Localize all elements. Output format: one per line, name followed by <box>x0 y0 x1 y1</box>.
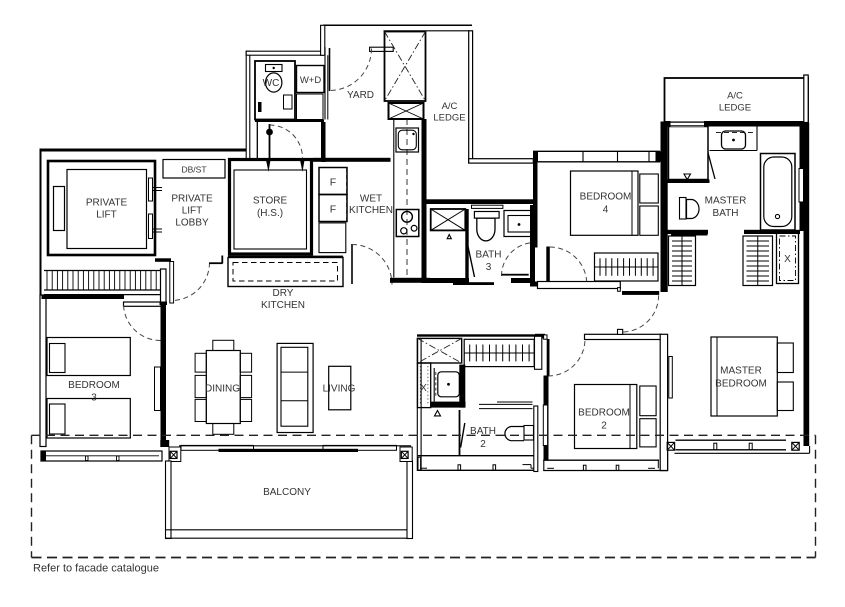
svg-text:PRIVATE: PRIVATE <box>86 198 128 209</box>
svg-text:LIFT: LIFT <box>96 210 117 221</box>
svg-text:LIVING: LIVING <box>323 384 356 395</box>
svg-text:F: F <box>330 177 336 189</box>
svg-text:KITCHEN: KITCHEN <box>349 205 393 216</box>
svg-text:DRY: DRY <box>273 288 294 299</box>
svg-text:W+D: W+D <box>300 75 322 86</box>
svg-text:3: 3 <box>91 393 97 404</box>
svg-text:4: 4 <box>603 205 609 216</box>
svg-text:MASTER: MASTER <box>720 366 762 377</box>
svg-text:BEDROOM: BEDROOM <box>578 408 630 419</box>
svg-text:X: X <box>784 254 791 265</box>
svg-text:BATH: BATH <box>476 250 502 261</box>
svg-text:LEDGE: LEDGE <box>719 103 751 114</box>
svg-text:WC: WC <box>263 78 280 89</box>
svg-text:LIFT: LIFT <box>182 206 203 217</box>
svg-text:BEDROOM: BEDROOM <box>580 192 632 203</box>
svg-text:LEDGE: LEDGE <box>433 113 465 124</box>
svg-text:2: 2 <box>601 421 607 432</box>
svg-text:KITCHEN: KITCHEN <box>261 300 305 311</box>
svg-text:BATH: BATH <box>713 208 739 219</box>
svg-text:BEDROOM: BEDROOM <box>715 379 767 390</box>
svg-text:YARD: YARD <box>347 90 374 101</box>
svg-text:WET: WET <box>360 194 382 205</box>
svg-text:PRIVATE: PRIVATE <box>171 194 213 205</box>
svg-text:MASTER: MASTER <box>705 196 747 207</box>
svg-text:2: 2 <box>480 439 486 450</box>
svg-text:A/C: A/C <box>727 91 743 102</box>
svg-text:F: F <box>330 204 336 216</box>
svg-text:LOBBY: LOBBY <box>175 218 209 229</box>
svg-text:Refer to facade catalogue: Refer to facade catalogue <box>33 563 159 575</box>
svg-text:DB/ST: DB/ST <box>181 165 206 175</box>
svg-text:BALCONY: BALCONY <box>263 487 311 498</box>
svg-text:X: X <box>420 383 427 394</box>
svg-text:(H.S.): (H.S.) <box>257 208 283 219</box>
svg-text:DINING: DINING <box>205 384 240 395</box>
svg-text:3: 3 <box>486 262 492 273</box>
svg-text:BEDROOM: BEDROOM <box>68 380 120 391</box>
svg-text:STORE: STORE <box>253 196 288 207</box>
svg-text:A/C: A/C <box>442 101 458 112</box>
